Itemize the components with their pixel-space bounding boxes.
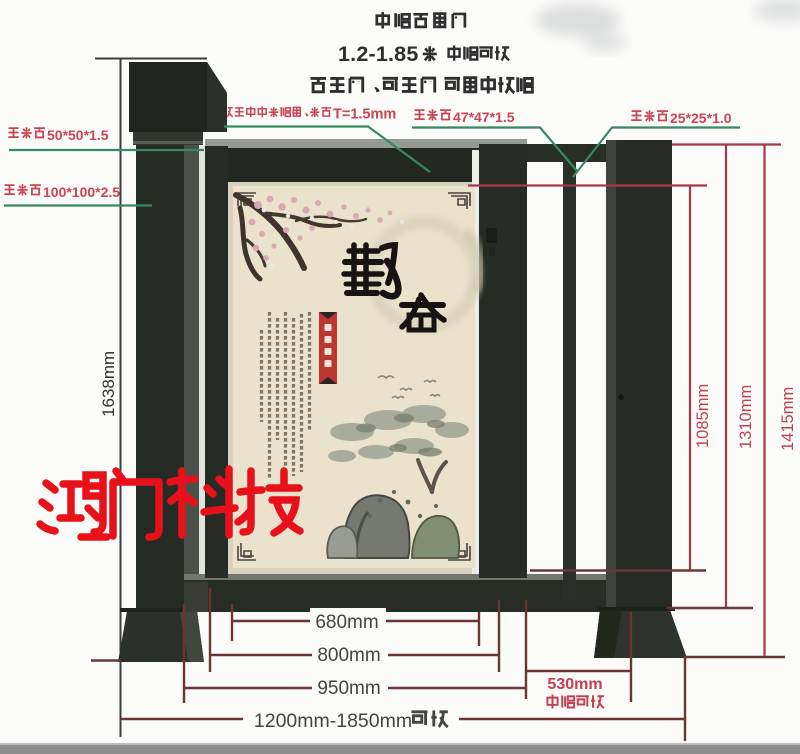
svg-text:50*50*1.5: 50*50*1.5 (47, 127, 109, 143)
svg-text:1638mm: 1638mm (99, 351, 118, 417)
svg-text:100*100*2.5: 100*100*2.5 (43, 184, 120, 200)
svg-text:25*25*1.0: 25*25*1.0 (670, 110, 732, 126)
svg-text:1310mm: 1310mm (737, 385, 755, 449)
svg-text:1.2-1.85: 1.2-1.85 (338, 42, 419, 66)
svg-text:800mm: 800mm (317, 645, 380, 666)
svg-text:47*47*1.5: 47*47*1.5 (453, 109, 515, 125)
svg-text:530mm: 530mm (547, 676, 602, 693)
svg-text:T=1.5mm: T=1.5mm (333, 107, 396, 123)
svg-text:1200mm-1850mm: 1200mm-1850mm (254, 710, 412, 732)
svg-text:1085mm: 1085mm (694, 384, 712, 448)
svg-text:950mm: 950mm (317, 678, 380, 699)
svg-text:1415mm: 1415mm (779, 387, 797, 451)
svg-text:680mm: 680mm (315, 612, 378, 633)
